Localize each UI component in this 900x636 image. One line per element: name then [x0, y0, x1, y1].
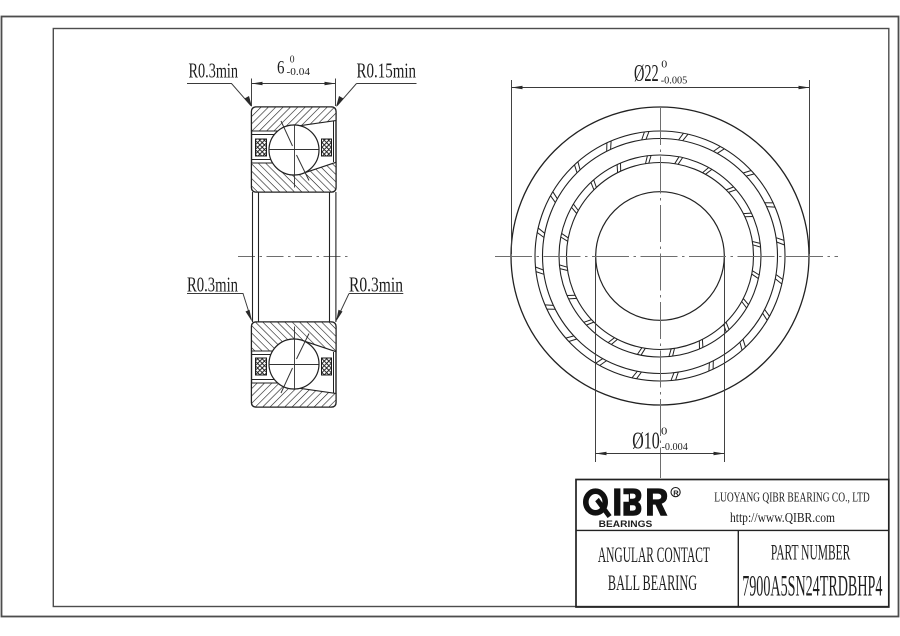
- svg-text:-0.04: -0.04: [287, 67, 311, 78]
- svg-text:PART NUMBER: PART NUMBER: [771, 540, 851, 565]
- svg-text:R0.15min: R0.15min: [357, 59, 417, 83]
- svg-text:-0.005: -0.005: [661, 76, 688, 87]
- svg-text:7900A5SN24TRDBHP4: 7900A5SN24TRDBHP4: [742, 571, 882, 603]
- svg-text:LUOYANG QIBR BEARING CO., LTD: LUOYANG QIBR BEARING CO., LTD: [714, 491, 870, 506]
- svg-text:0: 0: [661, 60, 667, 71]
- svg-text:R0.3min: R0.3min: [349, 273, 403, 297]
- svg-text:0: 0: [290, 55, 295, 66]
- svg-text:Ø22: Ø22: [634, 61, 659, 87]
- svg-text:R0.3min: R0.3min: [189, 59, 239, 83]
- svg-text:http://www.QIBR.com: http://www.QIBR.com: [730, 511, 835, 526]
- svg-text:6: 6: [277, 59, 285, 79]
- svg-text:R: R: [673, 488, 679, 497]
- svg-text:BEARINGS: BEARINGS: [599, 519, 653, 529]
- svg-text:-0.004: -0.004: [662, 442, 689, 453]
- svg-text:0: 0: [661, 427, 667, 438]
- svg-text:R0.3min: R0.3min: [187, 273, 238, 297]
- svg-text:ANGULAR CONTACT: ANGULAR CONTACT: [598, 542, 710, 567]
- svg-text:Ø10: Ø10: [632, 429, 659, 455]
- svg-text:BALL BEARING: BALL BEARING: [608, 570, 697, 595]
